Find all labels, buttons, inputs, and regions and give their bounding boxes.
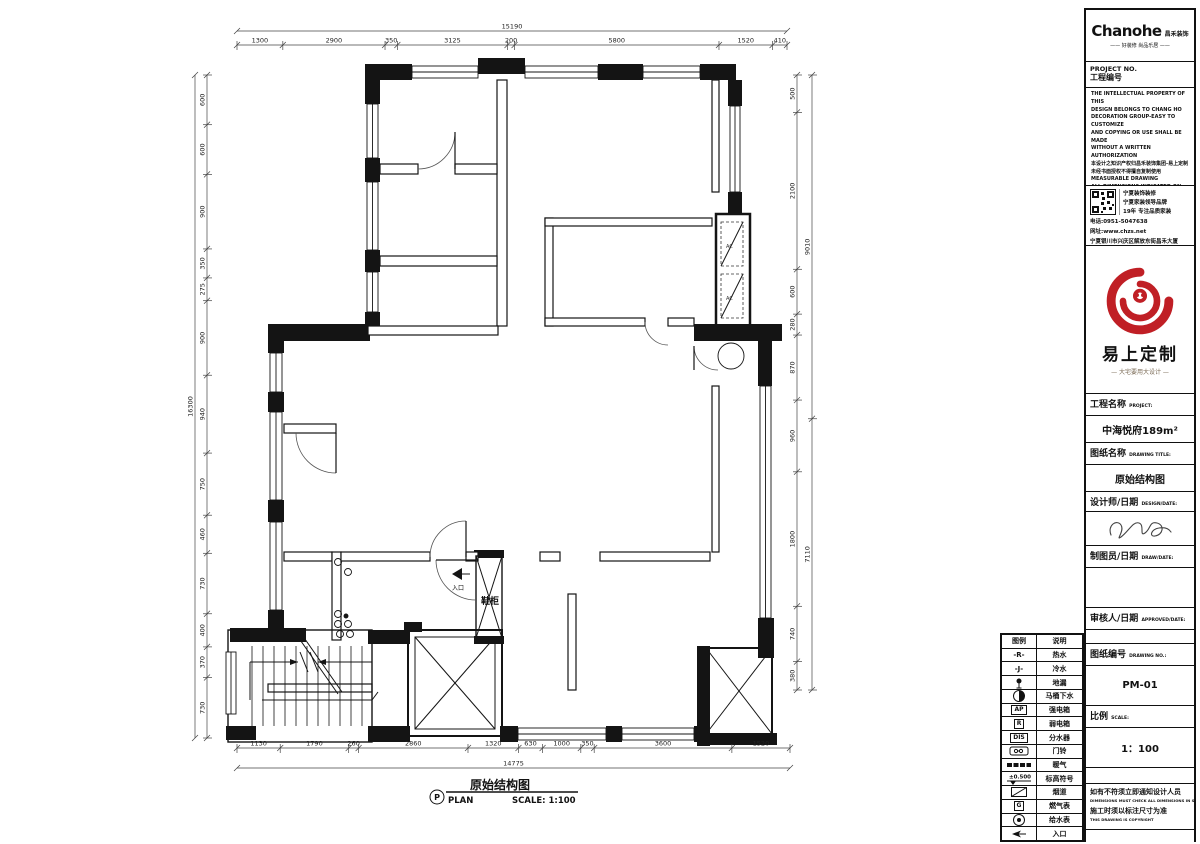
door-swing-arc (645, 322, 668, 345)
dim-label: 460 (199, 528, 207, 540)
disclaimer-line: 未经书面授权不得擅自复制使用 (1091, 169, 1189, 177)
legend-header: 图例 说明 (1002, 635, 1082, 649)
toilet-drain-icon (1002, 690, 1037, 703)
dim-label: 350 (581, 740, 593, 748)
door-swing-arc (430, 521, 466, 557)
fixture-circle (345, 621, 352, 628)
dim-label: 1790 (306, 740, 323, 748)
partition-segment (600, 552, 710, 561)
legend-desc: 冷水 (1037, 662, 1082, 675)
caption-scale: SCALE: 1:100 (512, 796, 576, 806)
legend-row-heating: 暖气 (1002, 759, 1082, 773)
project-name-label: 工程名称 (1090, 400, 1126, 410)
disclaimer-line: DECORATION GROUP-EASY TO CUSTOMIZE (1091, 114, 1189, 130)
dimension-right-inner: 50021006002808709601800740380 (789, 72, 803, 693)
dim-label: 870 (789, 361, 797, 373)
legend-header-desc: 说明 (1037, 635, 1082, 648)
qr-caption-line: 19年 专注品质家装 (1123, 207, 1171, 215)
dim-label: 750 (199, 478, 207, 490)
designer-en: DESIGN/DATE: (1141, 502, 1177, 507)
dim-label: 1300 (252, 37, 269, 45)
project-name-en: PROJECT: (1129, 404, 1152, 409)
dim-label: 7110 (804, 546, 812, 563)
partition-segment (455, 164, 497, 174)
partition-segment (368, 326, 498, 335)
dim-label: 370 (199, 656, 207, 668)
dim-label: 350 (199, 257, 207, 269)
legend-desc: 门铃 (1037, 745, 1082, 758)
legend-row-water-meter: 给水表 (1002, 814, 1082, 828)
disclaimer-line: THE INTELLECTUAL PROPERTY OF THIS (1091, 91, 1189, 107)
doorbell-icon (1002, 745, 1037, 758)
dim-label: 960 (789, 430, 797, 442)
legend-desc: 标高符号 (1037, 772, 1082, 785)
dimension-right-outer: 90107110 (804, 72, 818, 693)
drafter-label: 制图员/日期 (1090, 552, 1138, 562)
field-drafter-label: 制图员/日期 DRAW/DATE: (1086, 546, 1194, 568)
legend-desc: 强电箱 (1037, 704, 1082, 717)
dimension-left: 6006009003502759009407504607304003707301… (187, 72, 213, 741)
legend-desc: 地漏 (1037, 676, 1082, 689)
wall-segment (478, 58, 525, 74)
disclaimer-line: MEASURABLE DRAWING (1091, 176, 1189, 184)
legend-desc: 马桶下水 (1037, 690, 1082, 703)
approver-en: APPROVED/DATE: (1141, 618, 1185, 623)
partition-segment (380, 164, 418, 174)
disclaimer-section: THE INTELLECTUAL PROPERTY OF THISDESIGN … (1086, 88, 1194, 186)
door-swing-arc (694, 346, 718, 370)
title-block: Chanohe 昌禾装饰 —— 好装修 尚品乐居 —— PROJECT NO. … (1084, 8, 1196, 842)
legend-desc: 弱电箱 (1037, 717, 1082, 730)
contact-section: 宁夏装饰装修宁夏家装领导品牌19年 专注品质家装 电话:0951-5047638… (1086, 186, 1194, 246)
project-no-en: PROJECT NO. (1090, 65, 1190, 73)
project-no-cn: 工程编号 (1090, 73, 1190, 83)
partition-segment (380, 256, 497, 266)
project-name-value: 中海悦府189m² (1102, 422, 1178, 437)
field-scale-label: 比例 SCALE: (1086, 706, 1194, 728)
dim-label: 275 (199, 283, 207, 295)
heating-icon (1002, 759, 1037, 772)
dimension-top: 1300290035031252005800152041015190 (234, 23, 790, 51)
legend-desc: 入口 (1037, 827, 1082, 840)
arrow-head (290, 659, 298, 665)
wall-segment (365, 64, 412, 80)
fixture-circle (718, 343, 744, 369)
brand-logo-text: Chanohe (1091, 22, 1161, 40)
wall-segment (368, 726, 410, 742)
drawing-title-en: DRAWING TITLE: (1129, 453, 1171, 458)
caption-plan: PLAN (448, 796, 473, 806)
contact-website: 网址:www.chzs.net (1090, 227, 1190, 235)
wall-segment (268, 341, 284, 353)
entry-arrow-icon (1002, 827, 1037, 840)
approver-label: 审核人/日期 (1090, 614, 1138, 624)
water-meter-icon (1002, 814, 1037, 827)
dim-label: 600 (199, 94, 207, 106)
bottom-spacer (1086, 830, 1194, 842)
wall-segment (606, 726, 622, 742)
caption-bubble: P (434, 793, 440, 802)
dim-label: 900 (199, 205, 207, 217)
dim-label: 400 (199, 624, 207, 636)
legend-desc: 燃气表 (1037, 800, 1082, 813)
partition-segment (540, 552, 560, 561)
plan-caption: P 原始结构图 PLAN SCALE: 1:100 (430, 777, 578, 806)
disclaimer-line: WITHOUT A WRITTEN AUTHORIZATION (1091, 145, 1189, 161)
dim-label: 3125 (444, 37, 461, 45)
field-drawing-title-label: 图纸名称 DRAWING TITLE: (1086, 443, 1194, 465)
dim-label: 1000 (553, 740, 570, 748)
notes-section: 如有不符须立即通知设计人员 DIMENSIONS MUST CHECK ALL … (1086, 784, 1194, 830)
legend-row-floor-drain: 地漏 (1002, 676, 1082, 690)
note-line-1-en: DIMENSIONS MUST CHECK ALL DIMENSIONS IN … (1090, 798, 1190, 803)
drawing-title-value: 原始结构图 (1115, 471, 1165, 486)
qr-code (1090, 189, 1116, 215)
note-line-2: 施工时须以标注尺寸为准 (1090, 806, 1190, 816)
dim-label: 5800 (608, 37, 625, 45)
note-line-1: 如有不符须立即通知设计人员 (1090, 787, 1190, 797)
elevation-icon: ±0.500 (1002, 772, 1037, 785)
scale-en: SCALE: (1111, 716, 1129, 721)
dim-label: 500 (789, 87, 797, 99)
legend-desc: 给水表 (1037, 814, 1082, 827)
entrance-label: 入口 (452, 585, 464, 592)
dim-label: 1520 (737, 37, 754, 45)
dim-label: 15190 (502, 23, 523, 31)
legend-table: 图例 说明 -R-热水-J-冷水地漏马桶下水AP强电箱R弱电箱DIS分水器门铃暖… (1000, 633, 1084, 842)
arrow-head (452, 568, 462, 580)
legend-row-doorbell: 门铃 (1002, 745, 1082, 759)
brand-tagline: —— 好装修 尚品乐居 —— (1110, 42, 1170, 49)
wall-segment (226, 726, 256, 740)
qr-caption-line: 宁夏家装领导品牌 (1123, 198, 1171, 206)
partition-segment (545, 218, 553, 326)
red-swirl-logo (1103, 264, 1177, 338)
floor-plan-svg: 1300290035031252005800152041015190113017… (0, 0, 1000, 844)
dim-label: 350 (385, 37, 397, 45)
brand-logo: Chanohe 昌禾装饰 —— 好装修 尚品乐居 —— (1086, 10, 1194, 62)
wall-segment (728, 80, 742, 106)
dim-label: 600 (199, 143, 207, 155)
designer-signature (1105, 515, 1175, 543)
disclaimer-line: AND COPYING OR USE SHALL BE MADE (1091, 130, 1189, 146)
wall-segment (365, 158, 380, 182)
legend-row-toilet-drain: 马桶下水 (1002, 690, 1082, 704)
legend-desc: 分水器 (1037, 731, 1082, 744)
dim-label: 600 (789, 285, 797, 297)
caption-title: 原始结构图 (470, 777, 530, 792)
project-no-section: PROJECT NO. 工程编号 (1086, 62, 1194, 88)
dim-label: 200 (505, 37, 517, 45)
partition-segment (712, 386, 719, 552)
fixture-circle (347, 631, 354, 638)
drawing-no-value: PM-01 (1122, 680, 1157, 691)
contact-address: 宁夏银川市兴庆区解放东街昌禾大厦 (1090, 237, 1190, 245)
designer-signature-cell (1086, 512, 1194, 546)
field-project-name-value: 中海悦府189m² (1086, 416, 1194, 443)
svg-text:±0.500: ±0.500 (1009, 774, 1031, 780)
red-logo-section: 易上定制 — 大宅要用大设计 — (1086, 246, 1194, 394)
dim-label: 2100 (789, 183, 797, 200)
field-designer-label: 设计师/日期 DESIGN/DATE: (1086, 492, 1194, 512)
drafter-value-cell (1086, 568, 1194, 608)
legend-row-elevation: ±0.500标高符号 (1002, 772, 1082, 786)
dim-label: 410 (774, 37, 786, 45)
field-drawing-title-value: 原始结构图 (1086, 465, 1194, 492)
legend-row-entry-arrow: 入口 (1002, 827, 1082, 840)
wall-segment (268, 324, 370, 341)
dim-label: 380 (789, 670, 797, 682)
dim-label: 1130 (250, 740, 267, 748)
door-swing-arc (296, 433, 336, 473)
wall-segment (728, 192, 742, 214)
contact-phone: 电话:0951-5047638 (1090, 217, 1190, 225)
legend-desc: 暖气 (1037, 759, 1082, 772)
disclaimer-line: DESIGN BELONGS TO CHANG HO (1091, 107, 1189, 115)
scale-label: 比例 (1090, 712, 1108, 722)
designer-label: 设计师/日期 (1090, 498, 1138, 508)
dim-label: 14775 (503, 760, 524, 768)
disclaimer-line: 本设计之知识产权归昌禾装饰集团-易上定制 (1091, 161, 1189, 169)
legend-row-power-box: AP强电箱 (1002, 704, 1082, 718)
legend-header-symbol: 图例 (1002, 635, 1037, 648)
partition-segment (284, 424, 336, 433)
qr-text-lines: 宁夏装饰装修宁夏家装领导品牌19年 专注品质家装 (1119, 189, 1171, 215)
field-project-name-label: 工程名称 PROJECT: (1086, 394, 1194, 416)
note-line-2-en: THIS DRAWING IS COPYRIGHT (1090, 817, 1190, 822)
brand-logo-cn: 昌禾装饰 (1165, 29, 1189, 38)
wall-segment (598, 64, 643, 80)
legend-row-gas-meter: G燃气表 (1002, 800, 1082, 814)
drawing-title-label: 图纸名称 (1090, 449, 1126, 459)
ac-unit-label-1: AC (726, 244, 733, 250)
legend-row-hot-water: -R-热水 (1002, 649, 1082, 663)
partition-segment (712, 80, 719, 192)
legend-row-cold-water: -J-冷水 (1002, 662, 1082, 676)
ac-unit-label-2: AC (726, 296, 733, 302)
drawing-sheet: 1300290035031252005800152041015190113017… (0, 0, 1200, 844)
red-logo-name: 易上定制 (1102, 340, 1178, 365)
drawing-no-value-cell: PM-01 (1086, 666, 1194, 706)
wall-segment (758, 341, 772, 386)
door-swing-arc (436, 560, 476, 600)
partition-segment (497, 80, 507, 326)
dim-label: 900 (199, 332, 207, 344)
door-swing-arc (418, 132, 455, 169)
approver-value-cell (1086, 630, 1194, 644)
weak-box-icon: R (1002, 717, 1037, 730)
hot-water-icon: -R- (1002, 649, 1037, 662)
drawing-no-label: 图纸编号 (1090, 650, 1126, 660)
gas-meter-icon: G (1002, 800, 1037, 813)
wall-segment (368, 630, 410, 644)
dim-label: 280 (789, 318, 797, 330)
wall-segment (365, 80, 380, 104)
legend-desc: 烟道 (1037, 786, 1082, 799)
legend-row-weak-box: R弱电箱 (1002, 717, 1082, 731)
partition-segment (568, 594, 576, 690)
dim-label: 16300 (187, 396, 195, 417)
dim-label: 740 (789, 628, 797, 640)
power-box-icon: AP (1002, 704, 1037, 717)
dim-label: 3600 (655, 740, 672, 748)
dim-label: 630 (524, 740, 536, 748)
dim-label: 730 (199, 702, 207, 714)
wall-segment (268, 500, 284, 522)
fixture-circle (344, 614, 348, 618)
fixture-circle (345, 569, 352, 576)
dim-label: 2900 (326, 37, 343, 45)
legend-desc: 热水 (1037, 649, 1082, 662)
floor-drain-icon (1002, 676, 1037, 689)
dim-label: 260 (347, 740, 359, 748)
field-drawing-no-label: 图纸编号 DRAWING NO.: (1086, 644, 1194, 666)
partition-segment (668, 318, 694, 326)
drafter-en: DRAW/DATE: (1141, 556, 1173, 561)
manifold-icon: DIS (1002, 731, 1037, 744)
wall-segment (700, 64, 736, 80)
qr-caption-line: 宁夏装饰装修 (1123, 189, 1171, 197)
cold-water-icon: -J- (1002, 662, 1037, 675)
drawing-no-en: DRAWING NO.: (1129, 654, 1166, 659)
field-approver-label: 审核人/日期 APPROVED/DATE: (1086, 608, 1194, 630)
dim-label: 9010 (804, 239, 812, 256)
legend-row-manifold: DIS分水器 (1002, 731, 1082, 745)
partition-segment (545, 318, 645, 326)
dim-label: 1320 (485, 740, 502, 748)
dim-label: 2860 (405, 740, 422, 748)
scale-value: 1：100 (1121, 740, 1159, 755)
dim-label: 1520 (753, 740, 770, 748)
scale-value-cell: 1：100 (1086, 728, 1194, 768)
partition-segment (284, 552, 332, 561)
shoe-cabinet-label: 鞋柜 (481, 595, 499, 607)
wall-segment (365, 250, 380, 272)
spacer-cell (1086, 768, 1194, 784)
dim-label: 730 (199, 577, 207, 589)
outline-box (268, 684, 372, 692)
dim-label: 940 (199, 408, 207, 420)
partition-segment (341, 552, 430, 561)
legend-row-flue: 烟道 (1002, 786, 1082, 800)
partition-segment (545, 218, 712, 226)
red-logo-tagline: — 大宅要用大设计 — (1111, 367, 1169, 376)
wall-segment (268, 392, 284, 412)
flue-icon (1002, 786, 1037, 799)
dim-label: 1800 (789, 531, 797, 548)
